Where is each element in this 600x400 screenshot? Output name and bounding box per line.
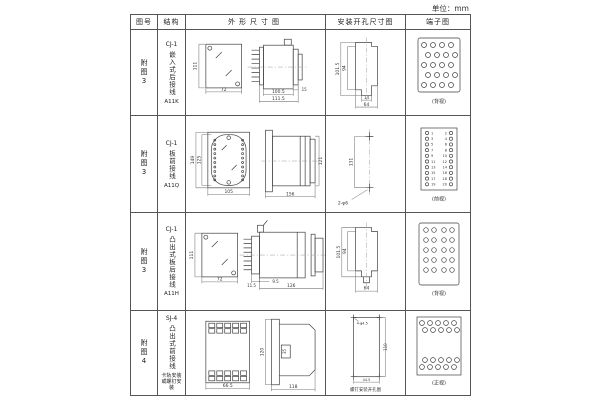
- terminal-num: 10: [443, 154, 447, 158]
- dim-front-width-4: 66.5: [223, 383, 233, 389]
- terminal-num: 11: [431, 159, 435, 163]
- terminal-view-label-3: (背视): [432, 290, 446, 297]
- install-cell-1: 101.5 94 14 64: [326, 30, 406, 116]
- structure-desc-1: 嵌入式后接线: [167, 51, 177, 96]
- dim-front-width-1: 72: [221, 86, 227, 92]
- terminal-num: 13: [431, 165, 435, 169]
- terminal-num: 7: [431, 148, 433, 152]
- install-drawing-a11h: 101.5 94 64: [326, 213, 405, 311]
- terminal-num: 14: [443, 165, 448, 169]
- hole-spec-2: 2-φ6: [338, 200, 348, 206]
- install-drawing-sj4: 4-φ4.5 110 44.5 螺钉安装开孔图: [326, 311, 405, 395]
- terminal-view-label-1: (背视): [432, 98, 446, 105]
- dim-side-width-2: 156: [286, 191, 295, 197]
- structure-cell-4: SJ-4 凸出式前接线 卡轨安装或螺钉安装: [158, 311, 186, 395]
- fig-no-cell-1: 附图3: [131, 30, 158, 116]
- outline-cell-3: 111 72 11.5 9.5 126: [186, 213, 326, 311]
- dim-install-inner-1: 94: [342, 65, 348, 71]
- dim-pin-depth-3: 11.5: [247, 282, 256, 287]
- terminal-num: 19: [431, 182, 435, 186]
- install-cell-3: 101.5 94 64: [326, 213, 406, 311]
- model-4: SJ-4: [166, 315, 177, 322]
- install-cell-4: 4-φ4.5 110 44.5 螺钉安装开孔图: [326, 311, 406, 395]
- dim-front-height-3: 111: [189, 250, 195, 259]
- model-2: CJ-1: [166, 140, 178, 147]
- terminal-drawing-a11k: (背视): [406, 30, 470, 116]
- fig-no-3: 附图3: [139, 248, 149, 276]
- dim-install-width-3: 64: [364, 285, 370, 291]
- dim-side-total-1: 111.5: [272, 95, 285, 101]
- terminal-view-label-4: (正视): [432, 380, 446, 387]
- terminal-num: 2: [445, 131, 447, 135]
- dim-panel-gap-3: 9.5: [272, 278, 279, 283]
- terminal-num: 9: [431, 154, 433, 158]
- terminal-num: 6: [445, 142, 447, 146]
- header-structure: 结构: [158, 15, 186, 30]
- unit-label: 单位：mm: [432, 3, 469, 14]
- structure-code-2: A11Q: [164, 183, 179, 189]
- install-note-4: 螺钉安装开孔图: [350, 386, 382, 393]
- structure-code-1: A11K: [164, 99, 178, 105]
- dim-side-height-2: 121: [318, 156, 324, 165]
- dim-install-outer-1: 101.5: [335, 62, 341, 75]
- dim-front-width-2: 105: [224, 188, 233, 194]
- terminal-drawing-a11h: (背视): [406, 213, 470, 311]
- header-terminal: 端子图: [406, 15, 470, 30]
- terminal-drawing-a11q: 1 3 5 7 9 11 13 15 17 19 2 4 6 8 10 12 1: [406, 116, 470, 213]
- install-drawing-a11q: 131 2-φ6: [326, 116, 405, 213]
- model-1: CJ-1: [166, 41, 178, 48]
- fig-no-2: 附图3: [139, 150, 149, 178]
- dim-hole-spacing-2: 131: [349, 157, 355, 166]
- dim-front-width-3: 72: [217, 276, 223, 282]
- dim-front-height-1: 111: [192, 61, 198, 70]
- terminal-num: 4: [445, 137, 448, 141]
- hole-spec-4: 4-φ4.5: [357, 321, 368, 325]
- terminal-view-label-2: (前视): [432, 195, 446, 202]
- dim-side-flange-1: 15: [302, 86, 308, 91]
- dim-install-height-4: 110: [383, 343, 388, 351]
- terminal-num: 3: [431, 137, 433, 141]
- header-install: 安装开孔尺寸图: [326, 15, 406, 30]
- terminal-num: 1: [431, 131, 433, 135]
- dim-install-width-4: 44.5: [363, 378, 371, 382]
- dim-side-width-4: 118: [289, 384, 298, 390]
- outline-drawing-a11q: 149 125 105 156 121: [186, 116, 325, 213]
- install-cell-2: 131 2-φ6: [326, 116, 406, 213]
- structure-desc-3: 凸出式板后接线: [167, 236, 177, 289]
- fig-no-1: 附图3: [139, 59, 149, 87]
- structure-cell-2: CJ-1 板前接线 A11Q: [158, 116, 186, 213]
- fig-no-cell-3: 附图3: [131, 213, 158, 311]
- dim-front-outer-2: 149: [190, 155, 196, 164]
- header-fig-no: 图号: [131, 15, 158, 30]
- outline-drawing-sj4: 66.5 120 35 118: [186, 311, 325, 395]
- structure-code-3: A11H: [164, 291, 179, 297]
- fig-no-cell-2: 附图3: [131, 116, 158, 213]
- outline-cell-1: 111 72 100.5 111.5 15: [186, 30, 326, 116]
- terminal-cell-2: 1 3 5 7 9 11 13 15 17 19 2 4 6 8 10 12 1: [406, 116, 470, 213]
- terminal-num: 20: [443, 182, 447, 186]
- terminal-num: 8: [445, 148, 447, 152]
- dim-side-total-3: 126: [287, 282, 296, 288]
- fig-no-cell-4: 附图4: [131, 311, 158, 395]
- dim-install-width-1: 64: [364, 102, 370, 108]
- spec-table: 图号 结构 外形尺寸图 安装开孔尺寸图 端子图 附图3 CJ-1 嵌入式后接线 …: [130, 14, 471, 396]
- structure-cell-1: CJ-1 嵌入式后接线 A11K: [158, 30, 186, 116]
- install-drawing-a11k: 101.5 94 14 64: [326, 30, 405, 116]
- dim-front-inner-2: 125: [196, 155, 202, 164]
- terminal-cell-3: (背视): [406, 213, 470, 311]
- outline-cell-4: 66.5 120 35 118: [186, 311, 326, 395]
- terminal-num: 12: [443, 159, 447, 163]
- outline-cell-2: 149 125 105 156 121: [186, 116, 326, 213]
- terminal-num: 15: [431, 171, 435, 175]
- terminal-num: 16: [443, 171, 447, 175]
- manual-page: 单位：mm 图号 结构 外形尺寸图 安装开孔尺寸图 端子图 附图3 CJ-1 嵌…: [0, 0, 600, 400]
- terminal-cell-4: (正视): [406, 311, 470, 395]
- dim-install-inner-3: 94: [342, 248, 348, 254]
- terminal-num: 18: [443, 176, 447, 180]
- structure-desc-2: 板前接线: [167, 150, 177, 180]
- header-outline: 外形尺寸图: [186, 15, 326, 30]
- dim-side-inner-4: 35: [282, 349, 287, 355]
- dim-side-height-4: 120: [259, 348, 265, 357]
- terminal-num: 17: [431, 176, 435, 180]
- fig-no-4: 附图4: [139, 339, 149, 367]
- outline-drawing-a11k: 111 72 100.5 111.5 15: [186, 30, 325, 116]
- terminal-drawing-sj4: (正视): [406, 311, 470, 395]
- terminal-num: 5: [431, 142, 433, 146]
- terminal-cell-1: (背视): [406, 30, 470, 116]
- dim-install-outer-3: 101.5: [336, 245, 342, 258]
- model-3: CJ-1: [166, 226, 178, 233]
- dim-side-body-1: 100.5: [272, 88, 285, 94]
- mount-note-4: 卡轨安装或螺钉安装: [160, 373, 184, 392]
- dim-install-small-1: 14: [364, 95, 370, 100]
- structure-cell-3: CJ-1 凸出式板后接线 A11H: [158, 213, 186, 311]
- outline-drawing-a11h: 111 72 11.5 9.5 126: [186, 213, 325, 311]
- structure-desc-4: 凸出式前接线: [167, 325, 177, 370]
